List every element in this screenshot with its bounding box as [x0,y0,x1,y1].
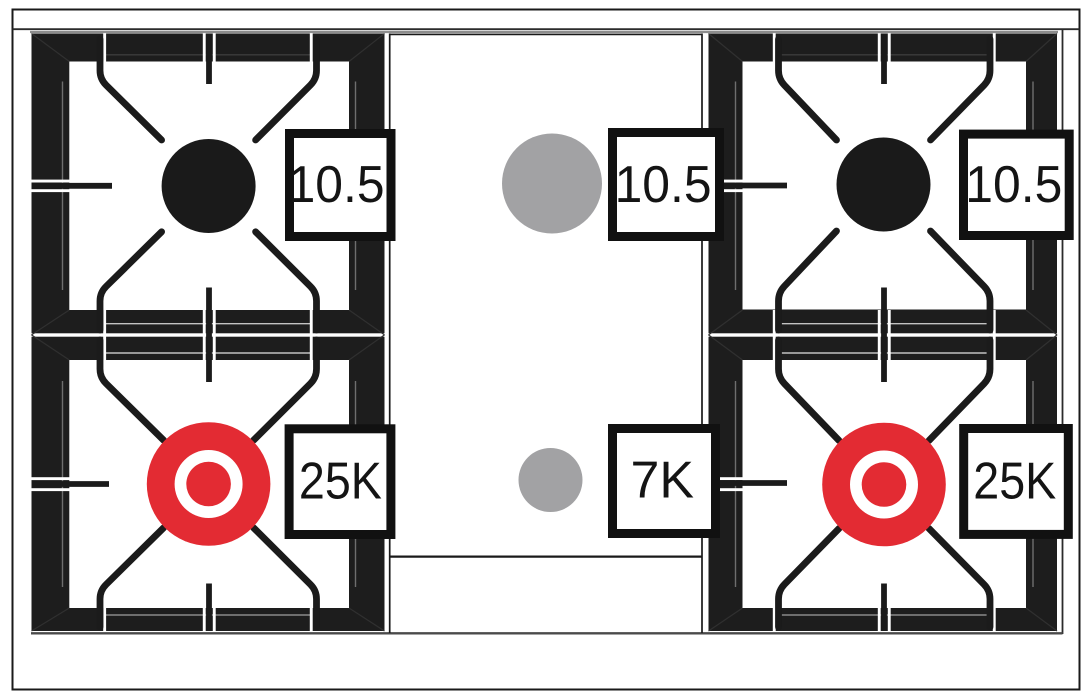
svg-text:25K: 25K [973,452,1056,510]
svg-text:25K: 25K [299,452,382,510]
svg-text:10.5: 10.5 [288,155,385,213]
svg-text:7K: 7K [631,451,695,509]
svg-text:10.5: 10.5 [615,155,712,213]
svg-text:10.5: 10.5 [965,155,1062,213]
